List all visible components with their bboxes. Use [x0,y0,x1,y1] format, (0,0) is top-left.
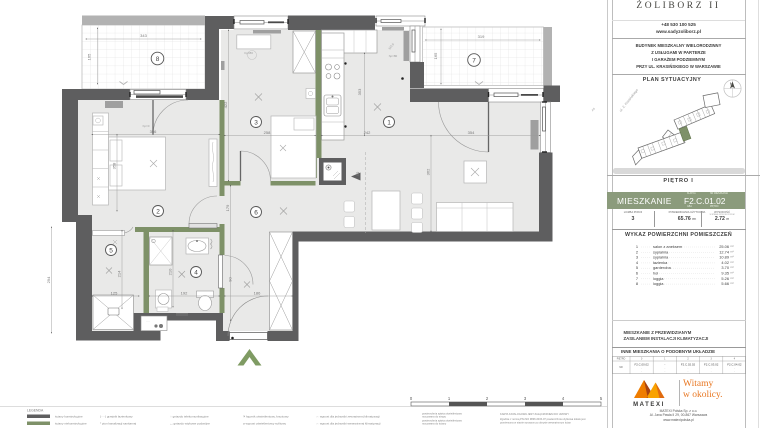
svg-text:125: 125 [111,291,118,296]
svg-text:-: - [734,369,735,373]
svg-text:3: 3 [711,358,713,360]
svg-text:LEGENDA: LEGENDA [27,409,44,413]
svg-text:1: 1 [664,358,666,360]
svg-text:8: 8 [156,56,160,63]
svg-text:◡ gniazdo wtykowe podwójne: ◡ gniazdo wtykowe podwójne [170,422,210,426]
svg-text:m²: m² [731,282,734,285]
svg-text:m²: m² [731,256,734,259]
svg-text:4: 4 [734,358,736,360]
svg-text:mocowana do ściany: mocowana do ściany [422,422,447,426]
svg-text:1: 1 [387,119,391,126]
svg-text:3.70: 3.70 [721,265,729,270]
svg-text:1: 1 [448,396,451,401]
svg-text:garderoba: garderoba [653,265,672,270]
svg-text:MATEXI: MATEXI [633,402,665,407]
svg-text:7: 7 [472,57,476,64]
svg-text:7: 7 [636,276,638,281]
svg-text:5: 5 [109,247,113,254]
svg-text:362: 362 [426,168,431,175]
svg-text:⌀ wypust oświetleniowy sufito: ⌀ wypust oświetleniowy sufitowy [243,422,286,426]
svg-text:····: ···· [146,319,150,323]
svg-text:354: 354 [468,130,475,135]
svg-text:5.66: 5.66 [721,281,729,286]
svg-text:2: 2 [156,208,160,215]
svg-text:-: - [664,369,665,373]
svg-text:◌ gniazdo telekomunikacyjne: ◌ gniazdo telekomunikacyjne [170,415,209,419]
svg-text:5.26: 5.26 [721,276,729,281]
svg-text:165: 165 [87,53,92,60]
svg-text:1: 1 [636,244,638,249]
svg-text:3: 3 [636,255,638,260]
svg-text:6: 6 [254,209,258,216]
svg-text:90: 90 [228,277,233,282]
svg-text:356: 356 [150,129,157,134]
svg-text:4: 4 [636,260,639,265]
svg-text:sypialnia: sypialnia [653,249,669,254]
svg-text:9.35: 9.35 [721,271,729,276]
svg-text:łazienka: łazienka [653,260,668,265]
svg-text:ściany konstrukcyjne: ściany konstrukcyjne [55,415,83,419]
svg-text:sypialnia: sypialnia [653,255,669,260]
svg-text:PIĘTRO: PIĘTRO [617,357,626,360]
svg-text:m²: m² [731,261,734,264]
svg-text:ul. Z. Krasińskiego: ul. Z. Krasińskiego [619,88,639,113]
svg-text:165: 165 [433,52,438,59]
svg-text:4: 4 [562,396,565,401]
svg-text:8: 8 [636,281,638,286]
svg-text:hp=80: hp=80 [244,51,253,55]
svg-text:-: - [641,369,642,373]
svg-text:353: 353 [357,88,362,95]
svg-text:m²: m² [731,266,734,269]
svg-text:salon z aneksem: salon z aneksem [653,244,682,249]
svg-text:loggia: loggia [653,276,664,281]
svg-text:4: 4 [194,269,198,276]
svg-text:KARTA KATALOGOWA JEST ZAŁĄCZNI: KARTA KATALOGOWA JEST ZAŁĄCZNIKIEM DO UM… [500,412,569,416]
svg-text:* pion kanalizacji sanitarn: * pion kanalizacji sanitarnej [100,422,137,426]
svg-text:294: 294 [46,276,51,283]
svg-text:242: 242 [364,130,371,135]
svg-text:m²: m² [731,250,734,253]
svg-text:✕ łącznik oświetleniowy, krzy: ✕ łącznik oświetleniowy, krzyżowy [243,415,289,419]
svg-text:319: 319 [478,34,485,39]
svg-text:↔ wypust dla jednostki wewnęt: ↔ wypust dla jednostki wewnętrznej klima… [316,422,381,426]
svg-text:3: 3 [524,396,527,401]
svg-text:258: 258 [264,130,271,135]
svg-text:4.02: 4.02 [721,260,729,265]
svg-text:hol: hol [653,271,658,276]
svg-text:6: 6 [636,271,638,276]
svg-text:2: 2 [636,249,638,254]
svg-text:80: 80 [355,171,360,176]
svg-text:(····) grzejnik łazienkowy: (····) grzejnik łazienkowy [100,415,133,419]
svg-text:358: 358 [112,162,117,169]
svg-text:422: 422 [223,101,228,108]
svg-text:pomierzona w stanie surowym po: pomierzona w stanie surowym po obrysie w… [500,421,571,425]
svg-text:3: 3 [254,119,258,126]
svg-text:10.89: 10.89 [719,255,729,260]
svg-text:5: 5 [636,265,638,270]
svg-text:25.06: 25.06 [719,244,729,249]
svg-text:loggia: loggia [653,281,664,286]
svg-text:2: 2 [687,358,689,360]
svg-text:hp=0: hp=0 [143,124,150,128]
svg-text:ściany niekonstrukcyjne: ściany niekonstrukcyjne [55,422,87,426]
svg-text:5: 5 [600,396,603,401]
svg-text:A1: A1 [591,106,597,112]
svg-text:↔ wypust dla jednostki zewnęt: ↔ wypust dla jednostki zewnętrznej klima… [316,415,380,419]
svg-text:m²: m² [731,277,734,280]
svg-text:-: - [688,369,689,373]
svg-text:12.74: 12.74 [719,249,730,254]
svg-text:mocowana do stropu: mocowana do stropu [422,415,447,419]
svg-text:0: 0 [410,396,413,401]
svg-text:Zgodnie z normą PN-ISO 9836:20: Zgodnie z normą PN-ISO 9836:2015-07 powi… [500,417,586,421]
svg-text:214: 214 [117,270,122,277]
svg-text:186: 186 [254,291,261,296]
svg-text:192: 192 [181,291,188,296]
svg-text:hp=80: hp=80 [389,54,398,58]
svg-text:m²: m² [731,245,734,248]
svg-text:179: 179 [225,204,230,211]
svg-text:0: 0 [641,358,643,360]
svg-text:NR: NR [619,367,623,369]
svg-text:-: - [711,369,712,373]
svg-text:210: 210 [168,268,173,275]
svg-text:2: 2 [486,396,489,401]
svg-text:343: 343 [140,33,147,38]
svg-text:m²: m² [731,272,734,275]
